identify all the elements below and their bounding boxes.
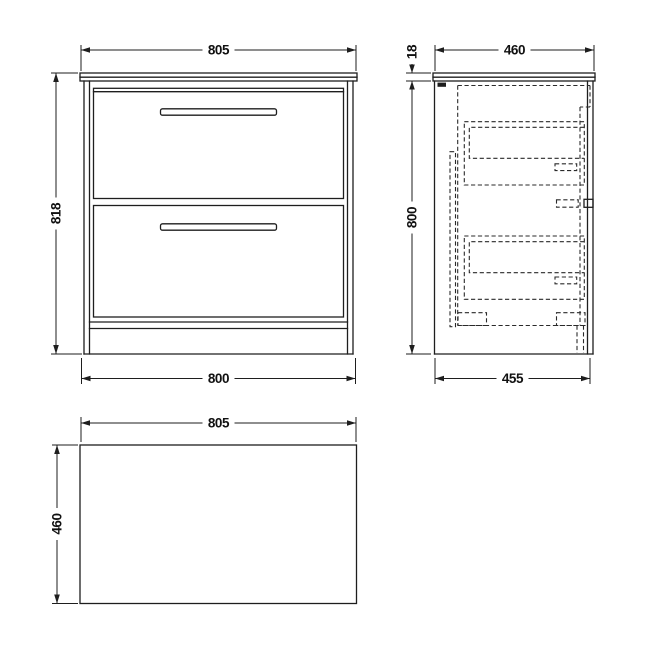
- front-view: 805 818 800: [49, 43, 358, 387]
- side-hidden-drawer-2: [464, 236, 584, 299]
- side-view: 460 18 800: [405, 40, 596, 386]
- side-depth-label: 460: [504, 43, 525, 58]
- front-height-label: 818: [49, 202, 64, 224]
- plan-depth-label: 460: [50, 513, 65, 534]
- side-wall-bracket: [438, 83, 447, 87]
- drawer-2-handle: [161, 224, 277, 230]
- front-plinth-rail: [90, 322, 348, 329]
- side-countertop: [433, 73, 595, 81]
- plan-width-dimension: 805: [81, 416, 356, 443]
- plan-worktop-outline: [80, 445, 357, 604]
- side-hidden-foot-front: [458, 313, 487, 326]
- plan-view: 805 460: [50, 416, 357, 604]
- front-cabinet-frame: [84, 81, 353, 354]
- side-drawer-runner-1: [555, 164, 577, 171]
- side-depth-dimension: 460: [435, 43, 594, 72]
- side-hidden-foot-back: [557, 313, 586, 326]
- technical-drawing: 805 818 800: [0, 0, 650, 650]
- front-countertop: [80, 73, 357, 81]
- side-top-thickness-dimension: 18: [405, 40, 432, 90]
- side-drawer-runner-2: [555, 277, 577, 284]
- front-width-dimension: 805: [81, 43, 356, 72]
- drawer-1-handle: [161, 109, 277, 115]
- technical-drawing-page: 805 818 800: [0, 0, 650, 650]
- side-base-depth-label: 455: [502, 371, 524, 386]
- front-drawer-1: [94, 88, 344, 198]
- front-base-width-label: 800: [208, 371, 229, 386]
- front-drawer-2: [94, 206, 344, 318]
- side-top-thickness-label: 18: [405, 44, 420, 59]
- plan-width-label: 805: [208, 416, 230, 431]
- side-hidden-front-panel: [450, 152, 456, 327]
- side-height-dimension: 800: [405, 81, 432, 354]
- front-base-width-dimension: 800: [82, 358, 356, 386]
- side-height-label: 800: [405, 207, 420, 228]
- front-height-dimension: 818: [49, 73, 83, 354]
- front-width-label: 805: [208, 43, 230, 58]
- side-hidden-carcass: [450, 86, 590, 354]
- plan-depth-dimension: 460: [50, 445, 79, 604]
- side-base-depth-dimension: 455: [435, 358, 590, 386]
- side-hidden-drawer-1: [464, 122, 584, 185]
